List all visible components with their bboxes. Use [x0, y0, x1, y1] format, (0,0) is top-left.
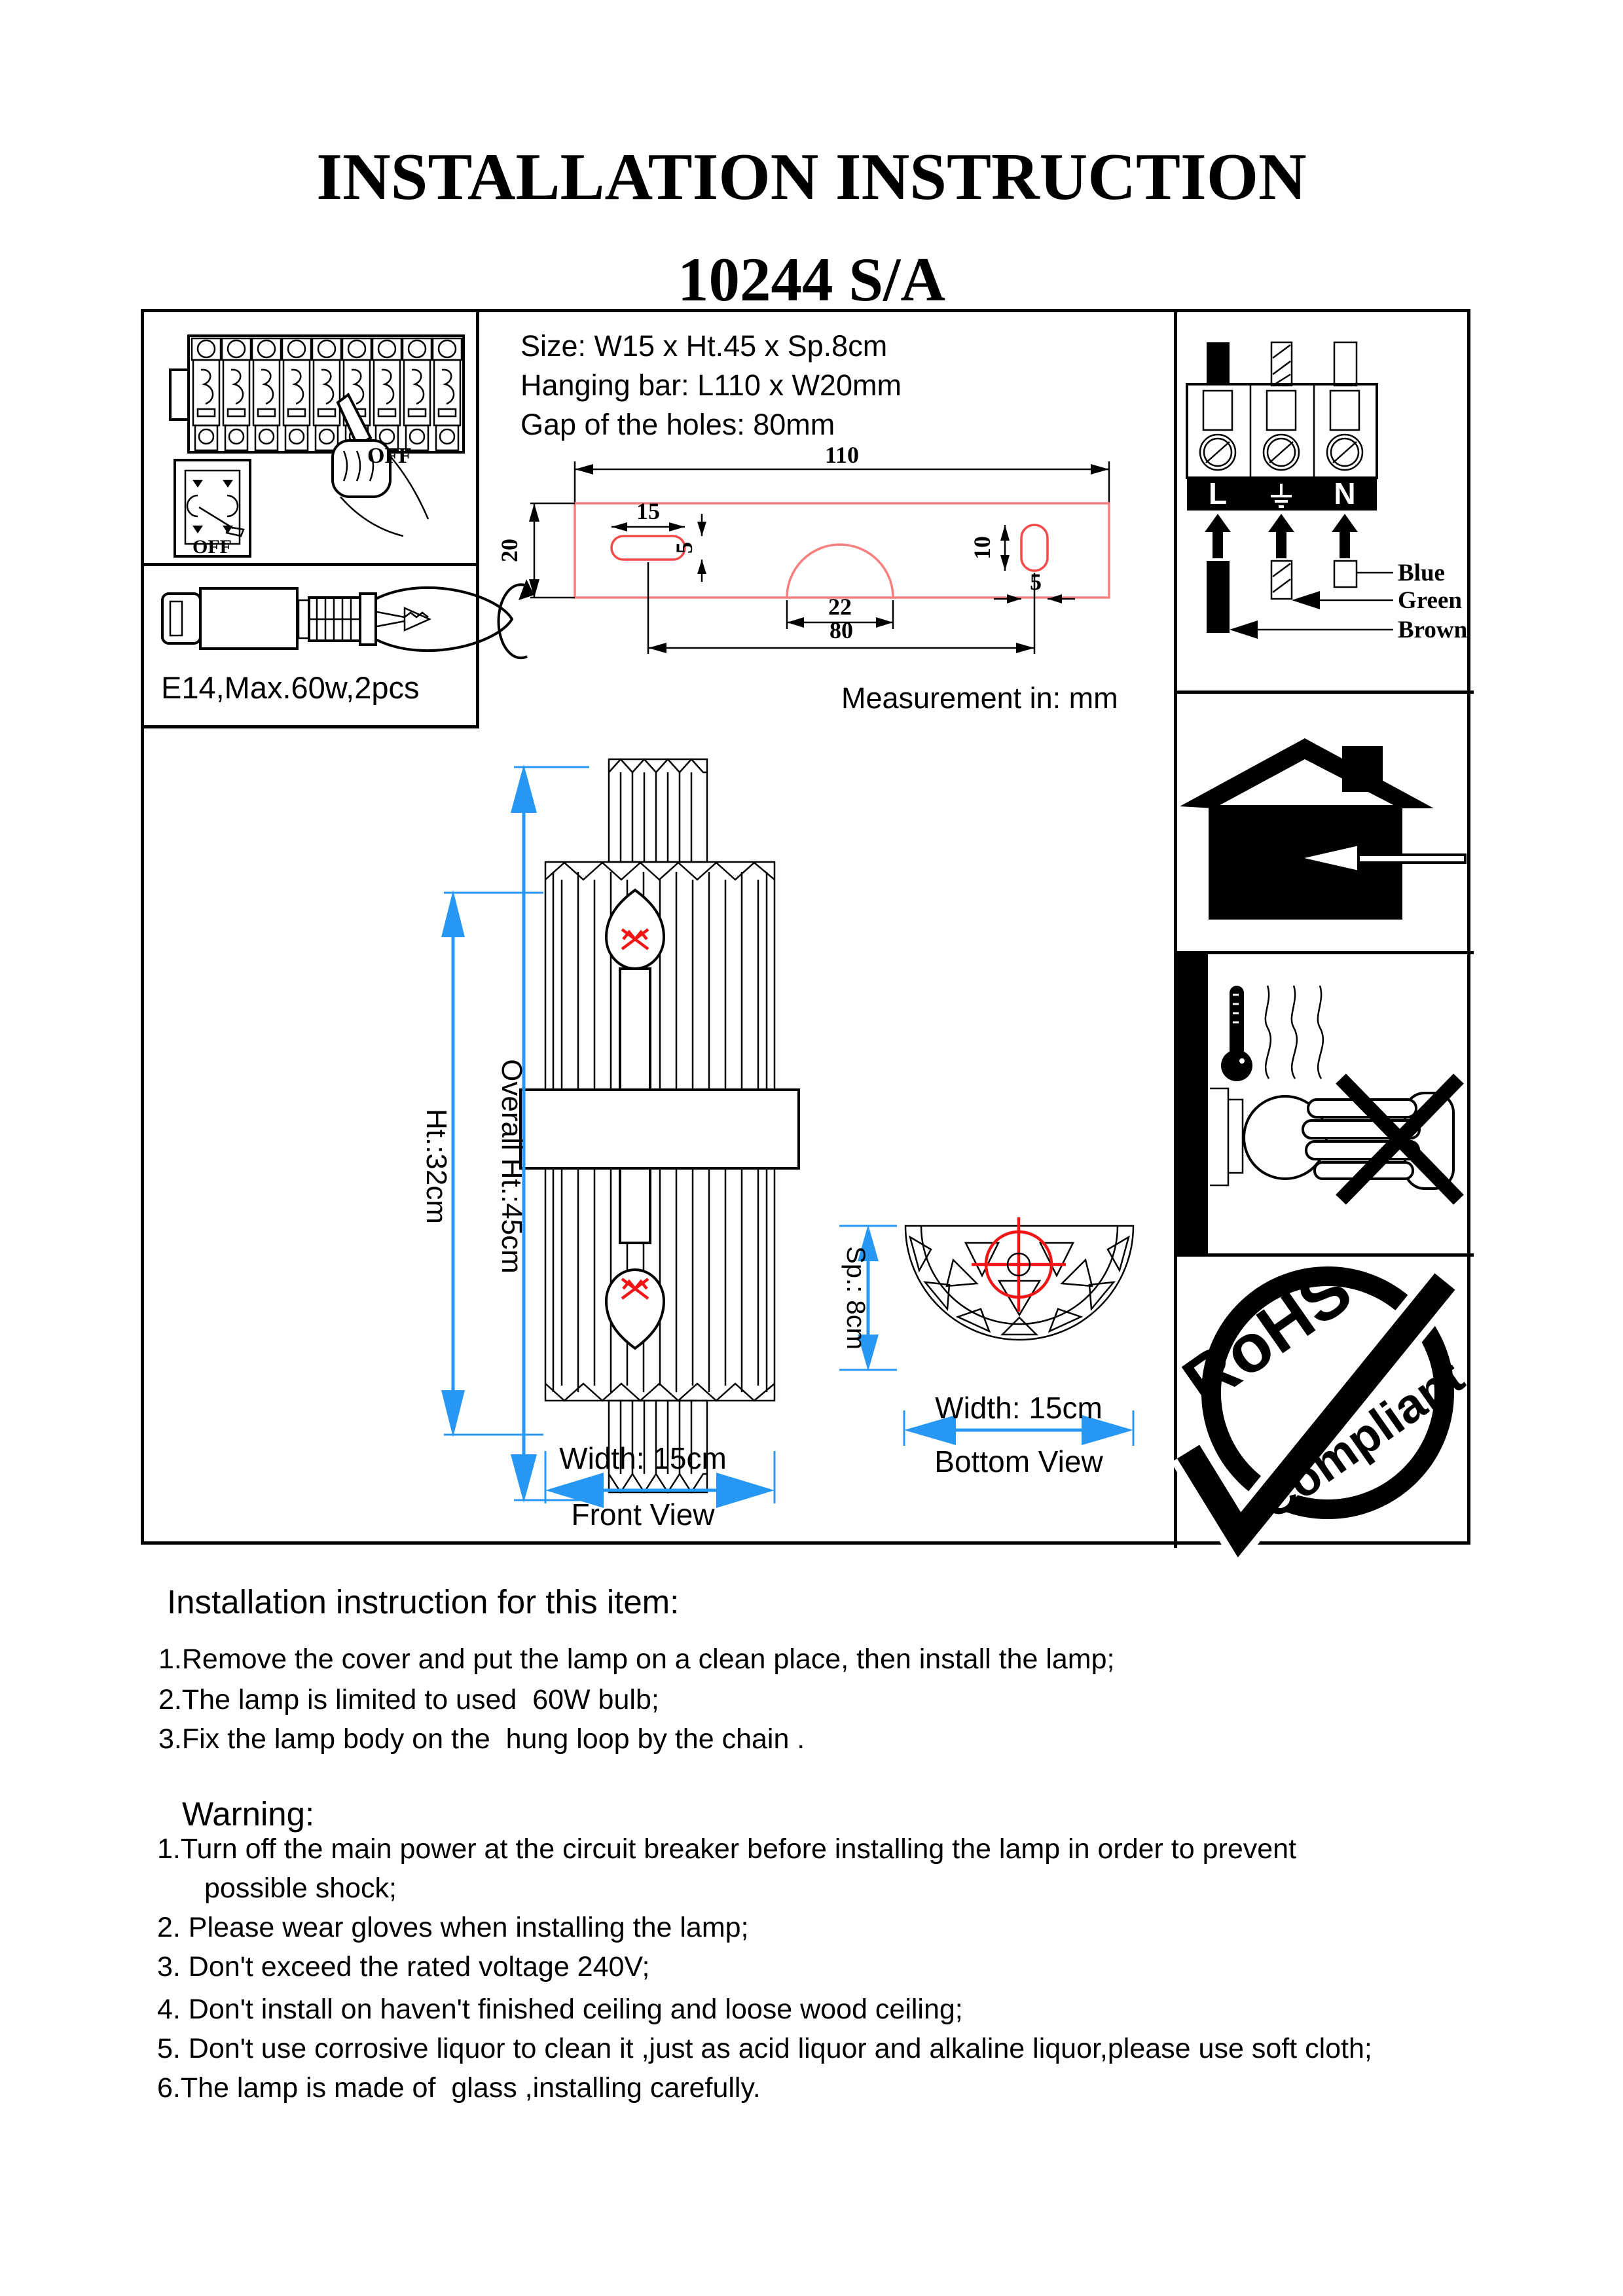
hot-surface-box — [1174, 954, 1474, 1257]
switch-off-label: OFF — [192, 536, 232, 558]
page-title: INSTALLATION INSTRUCTION — [0, 139, 1623, 215]
spec-size: Size: W15 x Ht.45 x Sp.8cm — [520, 327, 902, 366]
spec-hanging-bar: Hanging bar: L110 x W20mm — [520, 366, 902, 405]
dim-bottom-width: Width: 15cm — [935, 1391, 1103, 1425]
bulb-spec-label: E14,Max.60w,2pcs — [161, 670, 420, 706]
dim-hole-gap: 80 — [830, 617, 853, 643]
front-view-caption: Front View — [571, 1498, 715, 1532]
warning-line-1: 1.Turn off the main power at the circuit… — [157, 1833, 1296, 1865]
bottom-view-caption: Bottom View — [934, 1444, 1103, 1479]
instruction-item-3: 3.Fix the lamp body on the hung loop by … — [158, 1723, 805, 1755]
spec-gap: Gap of the holes: 80mm — [520, 405, 902, 444]
dim-body-height: Ht.:32cm — [420, 1109, 452, 1224]
dim-slot-height: 5 — [671, 542, 697, 554]
rohs-compliant-logo: RoHS Compliant — [1177, 1257, 1474, 1545]
warning-line-6: 6.The lamp is made of glass ,installing … — [157, 2072, 761, 2104]
dim-slot-width: 15 — [636, 498, 660, 524]
wire-label-blue: Blue — [1398, 560, 1445, 586]
warning-line-5: 5. Don't use corrosive liquor to clean i… — [157, 2033, 1372, 2065]
mounting-point-marker — [972, 1217, 1066, 1312]
front-view-drawing: Overall Ht.:45cm Ht.:32cm Width: 15cm Fr… — [386, 741, 831, 1536]
dim-depth: Sp.: 8cm — [841, 1246, 870, 1350]
dim-overall-height: Overall Ht.:45cm — [496, 1059, 528, 1274]
dim-front-width: Width: 15cm — [559, 1441, 727, 1475]
terminal-screws — [1200, 435, 1362, 470]
hanging-bar-drawing: 110 20 15 5 22 — [367, 443, 1139, 672]
do-not-touch-hot-icon — [1177, 954, 1474, 1253]
instruction-item-2: 2.The lamp is limited to used 60W bulb; — [158, 1684, 659, 1716]
dim-notch-width: 22 — [828, 594, 852, 620]
wire-label-green: Green — [1398, 587, 1462, 614]
wire-label-brown: Brown — [1398, 617, 1468, 643]
instruction-sheet: INSTALLATION INSTRUCTION 10244 S/A — [0, 0, 1623, 2296]
measurement-note: Measurement in: mm — [841, 681, 1118, 715]
warning-line-1b: possible shock; — [204, 1873, 397, 1905]
terminal-neutral-label: N — [1334, 476, 1355, 511]
wiring-box: L N — [1174, 312, 1474, 694]
hand-touch-bulb-icon — [1210, 1088, 1453, 1189]
instructions-heading: Installation instruction for this item: — [167, 1583, 679, 1621]
instruction-item-1: 1.Remove the cover and put the lamp on a… — [158, 1643, 1115, 1676]
breaker-row-icon — [170, 336, 464, 452]
warning-line-3: 3. Don't exceed the rated voltage 240V; — [157, 1951, 649, 1983]
terminal-block-diagram: L N — [1177, 312, 1474, 691]
bottom-view-drawing: Sp.: 8cm Width: 15cm Bottom View — [825, 1202, 1178, 1484]
indoor-use-box — [1174, 694, 1474, 954]
rohs-box: RoHS Compliant — [1174, 1257, 1474, 1548]
terminal-live-label: L — [1209, 476, 1227, 511]
warning-line-4: 4. Don't install on haven't finished cei… — [157, 1994, 963, 2026]
model-number: 10244 S/A — [0, 243, 1623, 315]
wall-lamp-bottom-icon — [905, 1217, 1133, 1340]
spec-text: Size: W15 x Ht.45 x Sp.8cm Hanging bar: … — [520, 327, 902, 444]
dim-right-slot-height: 10 — [969, 536, 995, 560]
diagram-frame: OFF OFF — [141, 309, 1470, 1545]
indoor-use-icon — [1177, 694, 1474, 951]
dim-right-slot-width: 5 — [1030, 569, 1042, 595]
dim-length: 110 — [825, 442, 859, 468]
warning-line-2: 2. Please wear gloves when installing th… — [157, 1912, 749, 1944]
wall-lamp-front-icon — [520, 759, 799, 1492]
thermometer-icon — [1221, 986, 1252, 1081]
heat-waves-icon — [1266, 986, 1323, 1079]
dim-height: 20 — [496, 539, 522, 562]
warning-heading: Warning: — [182, 1795, 314, 1833]
wire-direction-arrows — [1205, 514, 1358, 558]
